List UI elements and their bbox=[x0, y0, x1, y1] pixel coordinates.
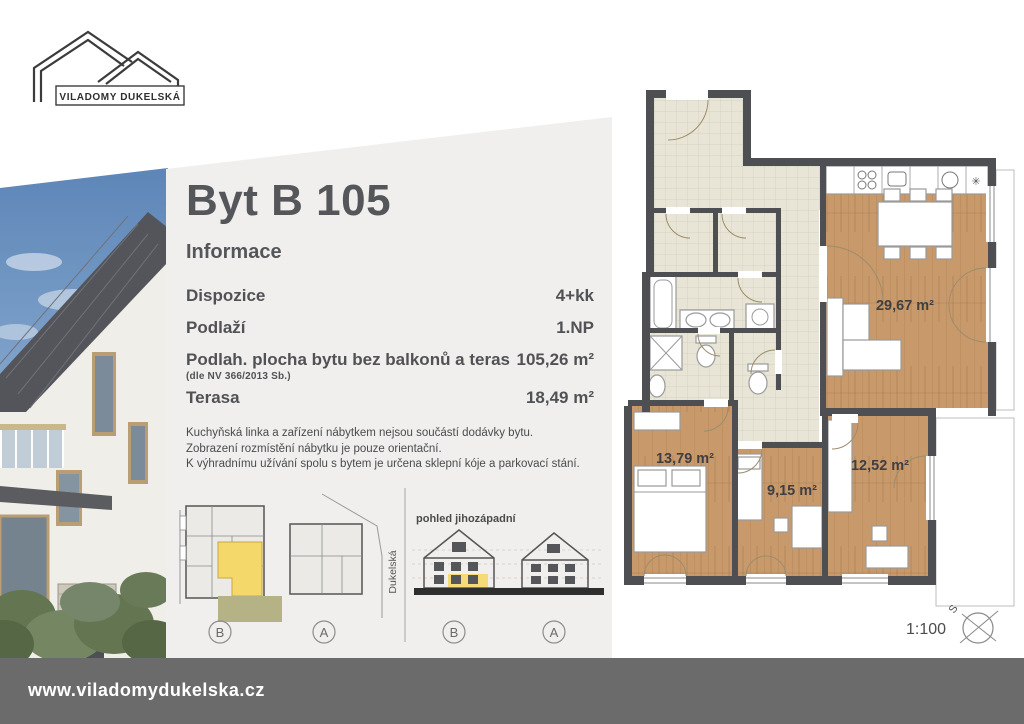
row-value: 4+kk bbox=[556, 286, 594, 306]
elevation-a-label: A bbox=[550, 625, 559, 640]
bathtub bbox=[650, 276, 676, 332]
north-label: S bbox=[947, 603, 961, 616]
elevation-caption: pohled jihozápadní bbox=[416, 513, 517, 525]
logo-text: VILADOMY DUKELSKÁ bbox=[59, 90, 180, 103]
room-area-label: 29,67 m² bbox=[876, 298, 934, 314]
row-value: 1.NP bbox=[556, 318, 594, 338]
scale-label: 1:100 bbox=[906, 621, 946, 638]
row-label: Podlah. plocha bytu bez balkonů a teras … bbox=[186, 350, 510, 382]
washbasin bbox=[649, 375, 665, 397]
elevation-b-label: B bbox=[450, 625, 459, 640]
floor-plan-drawing: ✳ bbox=[610, 78, 1024, 652]
shower bbox=[650, 336, 682, 370]
compass-icon: S bbox=[947, 603, 998, 643]
fridge-symbol-icon: ✳ bbox=[971, 176, 980, 188]
info-row-terasa: Terasa 18,49 m² bbox=[186, 388, 594, 408]
room-area-label: 13,79 m² bbox=[656, 451, 714, 467]
building-b-label: B bbox=[216, 625, 225, 640]
row-label: Terasa bbox=[186, 388, 240, 408]
row-value: 105,26 m² bbox=[517, 350, 595, 370]
section-subtitle: Informace bbox=[186, 241, 282, 264]
building-a-label: A bbox=[320, 625, 329, 640]
info-row-plocha: Podlah. plocha bytu bez balkonů a teras … bbox=[186, 350, 594, 382]
row-label: Dispozice bbox=[186, 286, 265, 306]
apartment-title: Byt B 105 bbox=[186, 176, 391, 226]
elevation-drawing: pohled jihozápadní bbox=[404, 486, 610, 658]
brochure-page: VILADOMY DUKELSKÁ Byt B 105 Informace Di… bbox=[0, 0, 1024, 724]
disclaimer-text: Kuchyňská linka a zařízení nábytkem nejs… bbox=[186, 426, 580, 473]
footer-bar: www.viladomydukelska.cz bbox=[0, 658, 1024, 724]
washing-machine bbox=[746, 304, 774, 330]
ground-line bbox=[414, 588, 604, 595]
terrace-area bbox=[218, 596, 282, 622]
info-row-dispozice: Dispozice 4+kk bbox=[186, 286, 594, 306]
info-panel: Byt B 105 Informace Dispozice 4+kk Podla… bbox=[166, 0, 612, 660]
dining-table bbox=[878, 189, 952, 259]
street-label: Dukelská bbox=[387, 550, 399, 593]
info-row-podlazi: Podlaží 1.NP bbox=[186, 318, 594, 338]
kitchen-counter: ✳ bbox=[826, 166, 988, 194]
company-logo: VILADOMY DUKELSKÁ bbox=[26, 24, 190, 108]
row-label: Podlaží bbox=[186, 318, 246, 338]
room-area-label: 9,15 m² bbox=[767, 483, 817, 499]
building-a-outline bbox=[290, 524, 362, 594]
hall-tiled-floor bbox=[650, 98, 820, 442]
row-value: 18,49 m² bbox=[526, 388, 594, 408]
website-link[interactable]: www.viladomydukelska.cz bbox=[28, 658, 265, 722]
toilet-2 bbox=[748, 364, 768, 394]
room-area-label: 12,52 m² bbox=[851, 458, 909, 474]
row-note: (dle NV 366/2013 Sb.) bbox=[186, 371, 510, 382]
site-plan-drawing: B A Dukelská bbox=[172, 486, 404, 658]
